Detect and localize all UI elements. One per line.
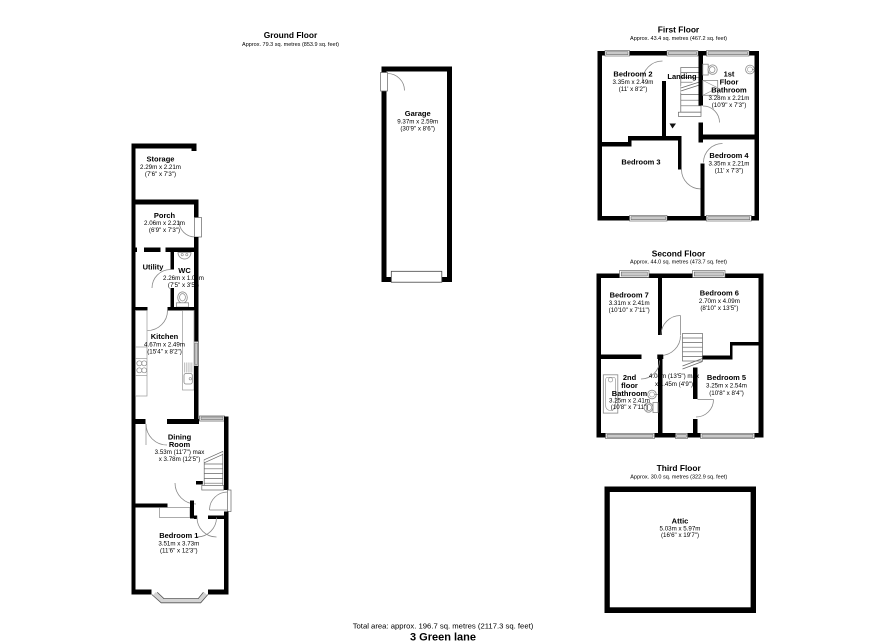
svg-text:Attic: Attic <box>672 517 689 526</box>
svg-text:Bedroom 4: Bedroom 4 <box>709 151 749 160</box>
svg-text:Second Floor: Second Floor <box>652 249 706 259</box>
svg-text:(30'9" x 8'6"): (30'9" x 8'6") <box>400 125 435 132</box>
svg-text:3.35m x 2.49m: 3.35m x 2.49m <box>613 79 654 86</box>
svg-text:Ground Floor: Ground Floor <box>264 30 318 40</box>
svg-text:(10'9" x 7'3"): (10'9" x 7'3") <box>712 102 747 109</box>
svg-text:(6'9" x 7'3"): (6'9" x 7'3") <box>149 227 180 234</box>
svg-text:Approx. 44.0 sq. metres (473.7: Approx. 44.0 sq. metres (473.7 sq. feet) <box>630 260 727 266</box>
svg-text:3.53m (11'7") max: 3.53m (11'7") max <box>155 449 206 456</box>
svg-text:Total area: approx. 196.7 sq.: Total area: approx. 196.7 sq. metres (21… <box>353 622 534 631</box>
svg-text:x 1.45m (4'9"): x 1.45m (4'9") <box>655 381 693 388</box>
svg-text:WC: WC <box>178 266 191 275</box>
svg-text:Third Floor: Third Floor <box>657 463 702 473</box>
svg-text:Bedroom 5: Bedroom 5 <box>707 373 746 382</box>
svg-text:3 Green lane: 3 Green lane <box>410 632 476 644</box>
svg-text:(10'8" x 8'4"): (10'8" x 8'4") <box>709 390 744 397</box>
svg-text:Approx. 30.0 sq. metres (322.9: Approx. 30.0 sq. metres (322.9 sq. feet) <box>630 475 727 481</box>
svg-text:9.37m x 2.59m: 9.37m x 2.59m <box>397 118 438 125</box>
svg-text:(7'5" x 3'5"): (7'5" x 3'5") <box>168 282 199 289</box>
svg-text:Room: Room <box>169 440 191 449</box>
svg-text:Approx. 79.3 sq. metres (853.9: Approx. 79.3 sq. metres (853.9 sq. feet) <box>242 42 339 48</box>
svg-text:Utility: Utility <box>143 263 165 272</box>
svg-text:(7'6" x 7'3"): (7'6" x 7'3") <box>145 171 176 178</box>
svg-text:(10'8" x 7'11"): (10'8" x 7'11") <box>611 404 649 411</box>
svg-text:Bedroom 2: Bedroom 2 <box>613 70 652 79</box>
svg-text:Bathroom: Bathroom <box>711 86 747 95</box>
svg-text:x 3.78m (12'5"): x 3.78m (12'5") <box>159 456 201 463</box>
svg-text:Approx. 43.4 sq. metres (467.2: Approx. 43.4 sq. metres (467.2 sq. feet) <box>630 36 727 42</box>
svg-text:(11' x 7'3"): (11' x 7'3") <box>715 168 744 175</box>
svg-text:First Floor: First Floor <box>658 25 700 35</box>
svg-text:(8'10" x 13'5"): (8'10" x 13'5") <box>700 305 738 312</box>
svg-text:(15'4" x 8'2"): (15'4" x 8'2") <box>147 348 182 355</box>
svg-text:Porch: Porch <box>154 211 176 220</box>
svg-text:3.31m x 2.41m: 3.31m x 2.41m <box>609 300 650 307</box>
svg-text:Bedroom 3: Bedroom 3 <box>621 158 660 167</box>
svg-text:(16'6" x 19'7"): (16'6" x 19'7") <box>661 532 699 539</box>
svg-text:4.67m x 2.49m: 4.67m x 2.49m <box>144 341 185 348</box>
svg-text:Bedroom 7: Bedroom 7 <box>610 291 649 300</box>
svg-text:Storage: Storage <box>147 155 175 164</box>
svg-text:Kitchen: Kitchen <box>151 332 179 341</box>
svg-text:2.29m x 2.21m: 2.29m x 2.21m <box>140 164 181 171</box>
svg-text:4.08m (13'5") max: 4.08m (13'5") max <box>649 373 700 380</box>
svg-text:3.25m x 2.54m: 3.25m x 2.54m <box>706 383 747 390</box>
svg-text:Garage: Garage <box>405 109 431 118</box>
svg-text:2.70m x 4.09m: 2.70m x 4.09m <box>699 298 740 305</box>
svg-text:(11'6" x 12'3"): (11'6" x 12'3") <box>160 547 198 554</box>
svg-text:(10'10" x 7'11"): (10'10" x 7'11") <box>609 307 650 314</box>
svg-text:3.35m x 2.21m: 3.35m x 2.21m <box>709 161 750 168</box>
svg-text:3.28m x 2.21m: 3.28m x 2.21m <box>709 95 750 102</box>
svg-text:Landing: Landing <box>667 72 697 81</box>
svg-text:(11' x 8'2"): (11' x 8'2") <box>619 86 648 93</box>
svg-text:2.06m x 2.21m: 2.06m x 2.21m <box>144 220 185 227</box>
svg-text:Bedroom 1: Bedroom 1 <box>159 531 198 540</box>
svg-text:Bedroom 6: Bedroom 6 <box>700 289 739 298</box>
svg-text:3.51m x 3.73m: 3.51m x 3.73m <box>158 540 199 547</box>
